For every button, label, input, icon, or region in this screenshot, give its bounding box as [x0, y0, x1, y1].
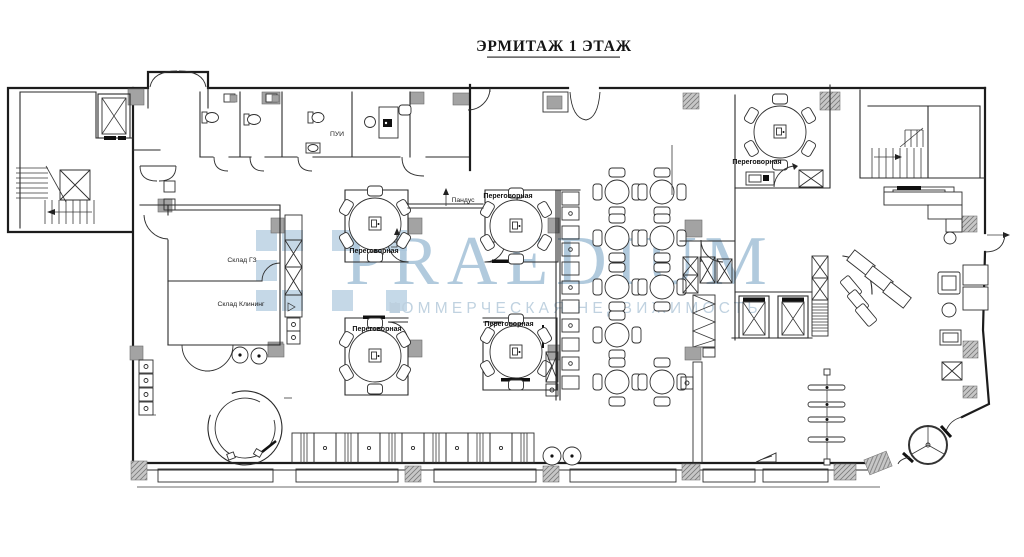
revolving-door: [898, 417, 962, 464]
label-meeting-b: Переговорная: [483, 193, 532, 200]
label-ramp: Пандус: [451, 197, 475, 204]
floor-plan-page: PRAEDIUM КОММЕРЧЕСКАЯ НЕДВИЖИМОСТЬ ЭРМИТ…: [0, 0, 1024, 557]
stair-block-west: [16, 92, 133, 228]
queue-barrier: [756, 369, 845, 465]
credenza: [746, 172, 774, 185]
stair-shaft-east: [812, 256, 828, 336]
reception-desk: [884, 192, 962, 244]
title-underline: [487, 57, 620, 58]
wc-band: [200, 85, 490, 176]
stairs-west: [16, 166, 94, 224]
label-pui: ПУИ: [330, 131, 344, 138]
lobby-seats: [840, 275, 878, 327]
toilet-2: [244, 114, 261, 125]
locker-row: [292, 433, 581, 465]
elevator-2: [778, 296, 808, 338]
label-storage-gz: Склад ГЗ: [227, 257, 256, 264]
hall-north-doors: [570, 92, 600, 120]
meeting-room-east: [735, 85, 830, 188]
label-storage-cleaning: Склад Клининг: [217, 301, 265, 308]
toilet-1: [202, 112, 219, 123]
watermark-tagline-group: КОММЕРЧЕСКАЯ НЕДВИЖИМОСТЬ: [388, 300, 761, 317]
wc-duct-2: [272, 95, 279, 102]
door-swing-mark: [756, 453, 776, 462]
elevator-1: [739, 296, 769, 338]
ramp-arrow: [443, 188, 449, 195]
pui-fixtures: [306, 112, 324, 153]
door-office-right: [468, 88, 490, 110]
label-meeting-east: Переговорная: [732, 159, 781, 166]
page-title: ЭРМИТАЖ 1 ЭТАЖ: [476, 38, 632, 55]
round-pod: [208, 391, 292, 465]
east-rooms: [860, 90, 1010, 252]
stairs-west-arrow: [47, 209, 55, 215]
stairs-east: [872, 128, 923, 178]
label-meeting-c: Переговорная: [352, 326, 401, 333]
label-meeting-a: Переговорная: [349, 248, 398, 255]
watermark-tagline: КОММЕРЧЕСКАЯ НЕДВИЖИМОСТЬ: [388, 300, 761, 317]
armchair: [938, 272, 960, 294]
wc-duct-1: [230, 95, 237, 102]
elevator-west: [98, 94, 130, 140]
floor-plan-drawing: PRAEDIUM КОММЕРЧЕСКАЯ НЕДВИЖИМОСТЬ ЭРМИТ…: [0, 0, 1024, 557]
facade-windows: [158, 469, 828, 482]
storage-rooms: [144, 205, 280, 371]
wall-radiators: [139, 360, 156, 415]
hall-stools: [232, 347, 267, 364]
office-desk: [365, 105, 412, 138]
label-meeting-d: Переговорная: [484, 321, 533, 328]
